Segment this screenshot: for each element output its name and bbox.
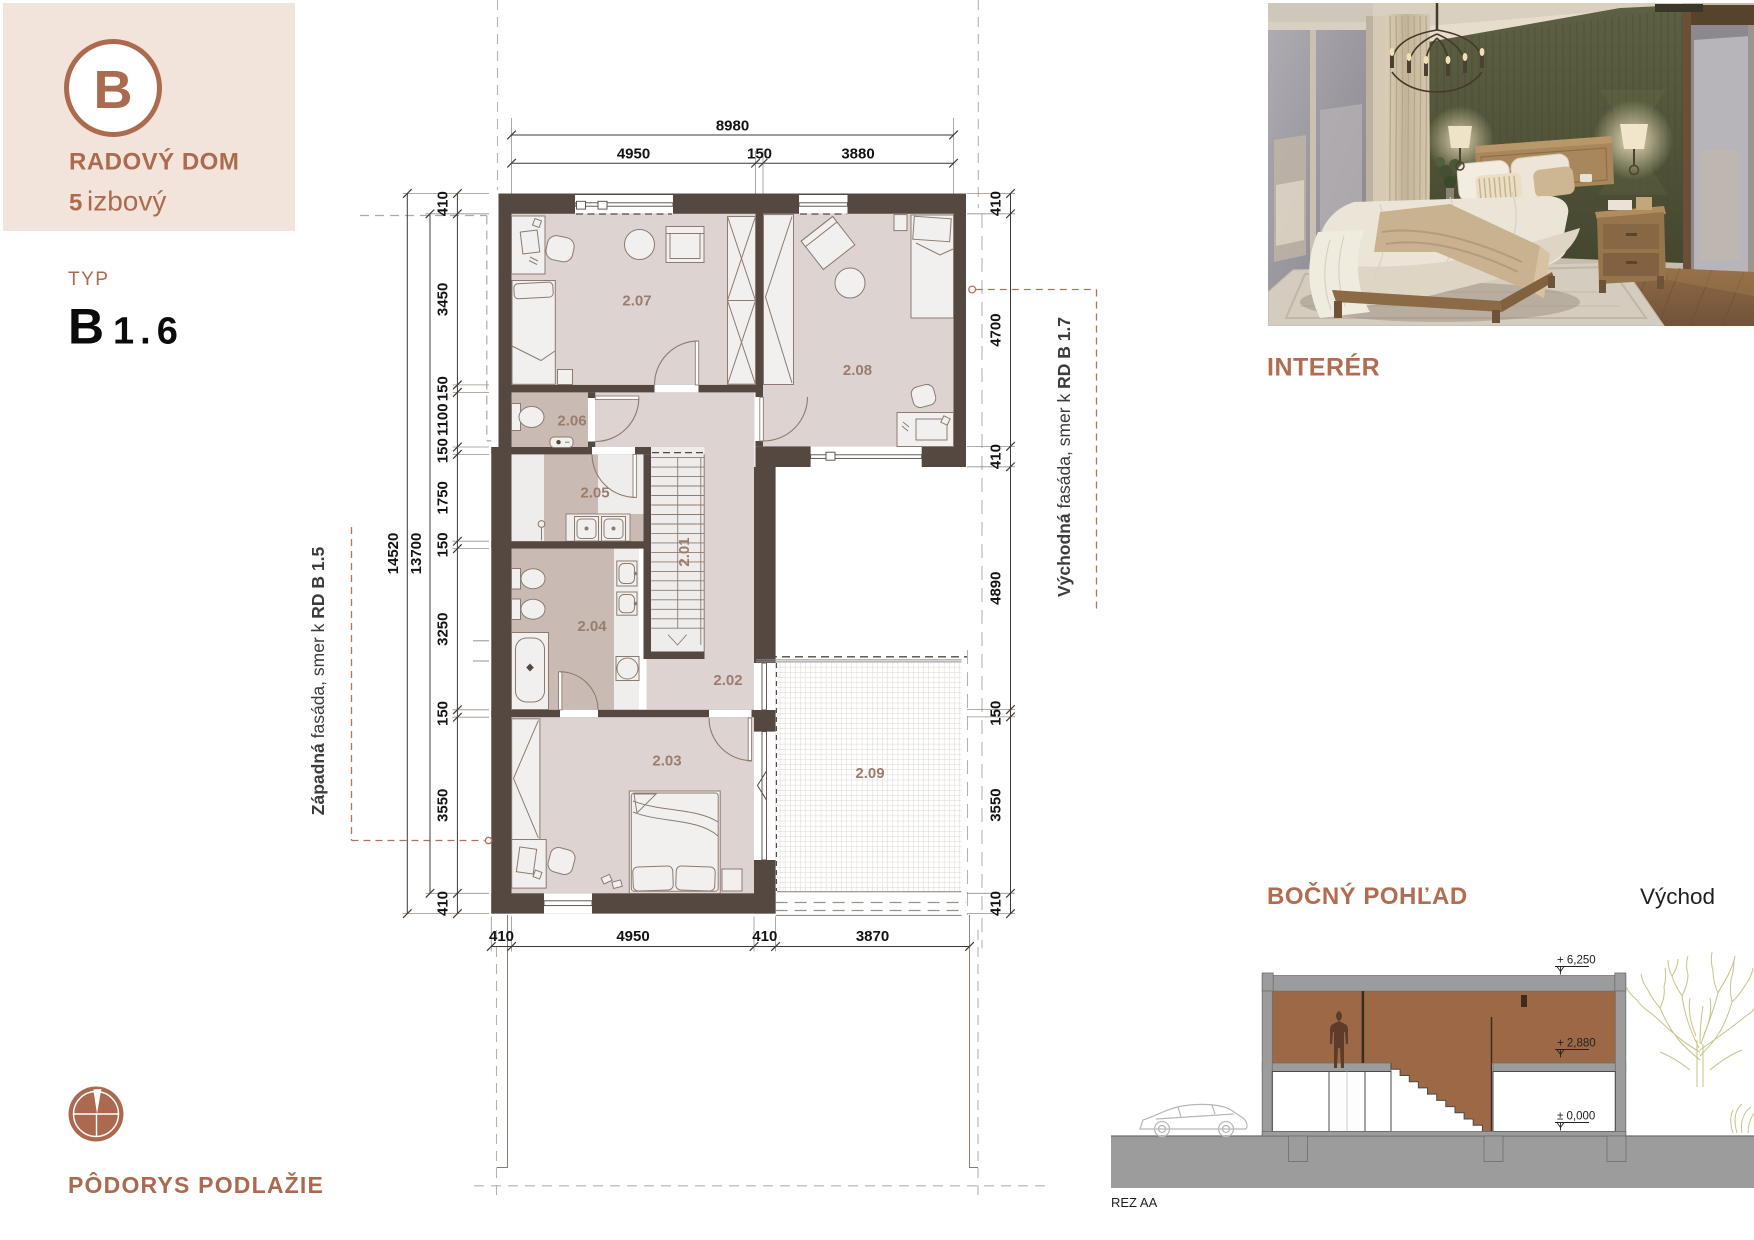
svg-text:150: 150 — [435, 376, 452, 401]
svg-text:150: 150 — [435, 532, 452, 557]
svg-text:4700: 4700 — [988, 313, 1005, 346]
svg-text:Východ: Východ — [1640, 884, 1715, 909]
svg-text:150: 150 — [988, 701, 1005, 726]
svg-text:3250: 3250 — [435, 613, 452, 646]
svg-text:+ 2,880: + 2,880 — [1557, 1038, 1596, 1050]
svg-text:150: 150 — [747, 146, 772, 163]
svg-text:3450: 3450 — [435, 283, 452, 316]
svg-text:3880: 3880 — [841, 146, 874, 163]
svg-text:2.08: 2.08 — [843, 362, 872, 379]
svg-text:B: B — [68, 299, 104, 355]
svg-text:INTERÉR: INTERÉR — [1267, 353, 1380, 382]
svg-text:5: 5 — [69, 190, 82, 217]
svg-text:REZ AA: REZ AA — [1111, 1195, 1158, 1210]
svg-text:4890: 4890 — [988, 572, 1005, 605]
svg-text:+ 6,250: + 6,250 — [1557, 955, 1596, 967]
svg-text:1100: 1100 — [435, 403, 452, 436]
svg-text:13700: 13700 — [408, 533, 425, 575]
svg-text:4950: 4950 — [616, 928, 649, 945]
svg-text:1750: 1750 — [435, 481, 452, 514]
svg-text:3870: 3870 — [856, 928, 889, 945]
svg-text:izbový: izbový — [87, 186, 166, 217]
svg-text:3550: 3550 — [435, 789, 452, 822]
svg-text:2.02: 2.02 — [713, 672, 742, 689]
svg-text:TYP: TYP — [68, 269, 109, 290]
svg-text:2.07: 2.07 — [622, 293, 651, 310]
svg-text:2.05: 2.05 — [580, 485, 609, 502]
svg-text:150: 150 — [435, 701, 452, 726]
svg-text:BOČNÝ POHĽAD: BOČNÝ POHĽAD — [1267, 882, 1468, 910]
svg-text:B: B — [94, 60, 133, 120]
svg-text:2.06: 2.06 — [557, 413, 586, 430]
svg-text:410: 410 — [988, 191, 1005, 216]
svg-text:410: 410 — [988, 444, 1005, 469]
svg-text:2.09: 2.09 — [855, 765, 884, 782]
svg-text:8980: 8980 — [716, 118, 749, 135]
svg-text:2.01: 2.01 — [676, 537, 693, 566]
svg-text:RADOVÝ DOM: RADOVÝ DOM — [69, 148, 239, 176]
svg-text:1.6: 1.6 — [113, 311, 184, 353]
svg-text:410: 410 — [489, 928, 514, 945]
svg-text:410: 410 — [752, 928, 777, 945]
svg-text:2.03: 2.03 — [652, 753, 681, 770]
svg-text:14520: 14520 — [385, 533, 402, 575]
svg-text:Západná fasáda, smer k RD B 1.: Západná fasáda, smer k RD B 1.5 — [308, 547, 328, 816]
svg-text:410: 410 — [435, 891, 452, 916]
svg-text:150: 150 — [435, 438, 452, 463]
svg-text:Východná fasáda, smer k RD B 1: Východná fasáda, smer k RD B 1.7 — [1054, 317, 1074, 597]
svg-text:2.04: 2.04 — [577, 618, 607, 635]
svg-text:± 0,000: ± 0,000 — [1557, 1111, 1595, 1123]
svg-text:3550: 3550 — [988, 788, 1005, 821]
svg-text:4950: 4950 — [617, 146, 650, 163]
svg-text:410: 410 — [988, 891, 1005, 916]
svg-text:PÔDORYS PODLAŽIE: PÔDORYS PODLAŽIE — [68, 1171, 324, 1198]
svg-text:410: 410 — [435, 191, 452, 216]
